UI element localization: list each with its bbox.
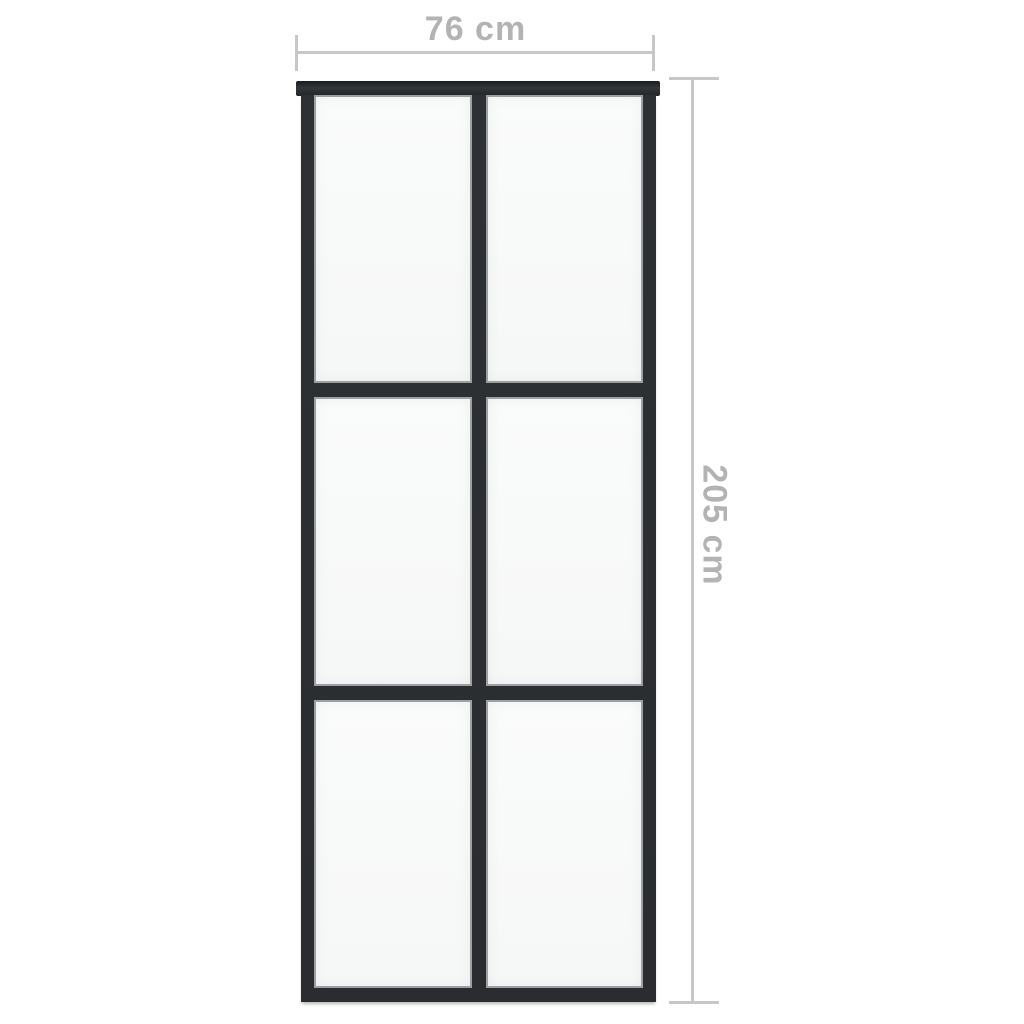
height-dimension-tick-bottom: [669, 1001, 719, 1004]
glass-panel: [486, 95, 644, 383]
height-dimension-label: 205 cm: [695, 464, 734, 585]
width-dimension-tick-left: [295, 35, 298, 71]
glass-panel: [314, 397, 472, 685]
glass-panel: [314, 700, 472, 988]
width-dimension-line: [297, 51, 654, 54]
glass-panel: [314, 95, 472, 383]
product-dimension-diagram: 76 cm 205 cm: [0, 0, 1024, 1024]
door-frame: [301, 95, 656, 1002]
width-dimension-label: 76 cm: [297, 10, 654, 49]
glass-panel: [486, 397, 644, 685]
door-top-track: [296, 81, 660, 96]
glass-panel: [486, 700, 644, 988]
width-dimension-tick-right: [652, 35, 655, 71]
height-dimension-tick-top: [669, 77, 719, 80]
